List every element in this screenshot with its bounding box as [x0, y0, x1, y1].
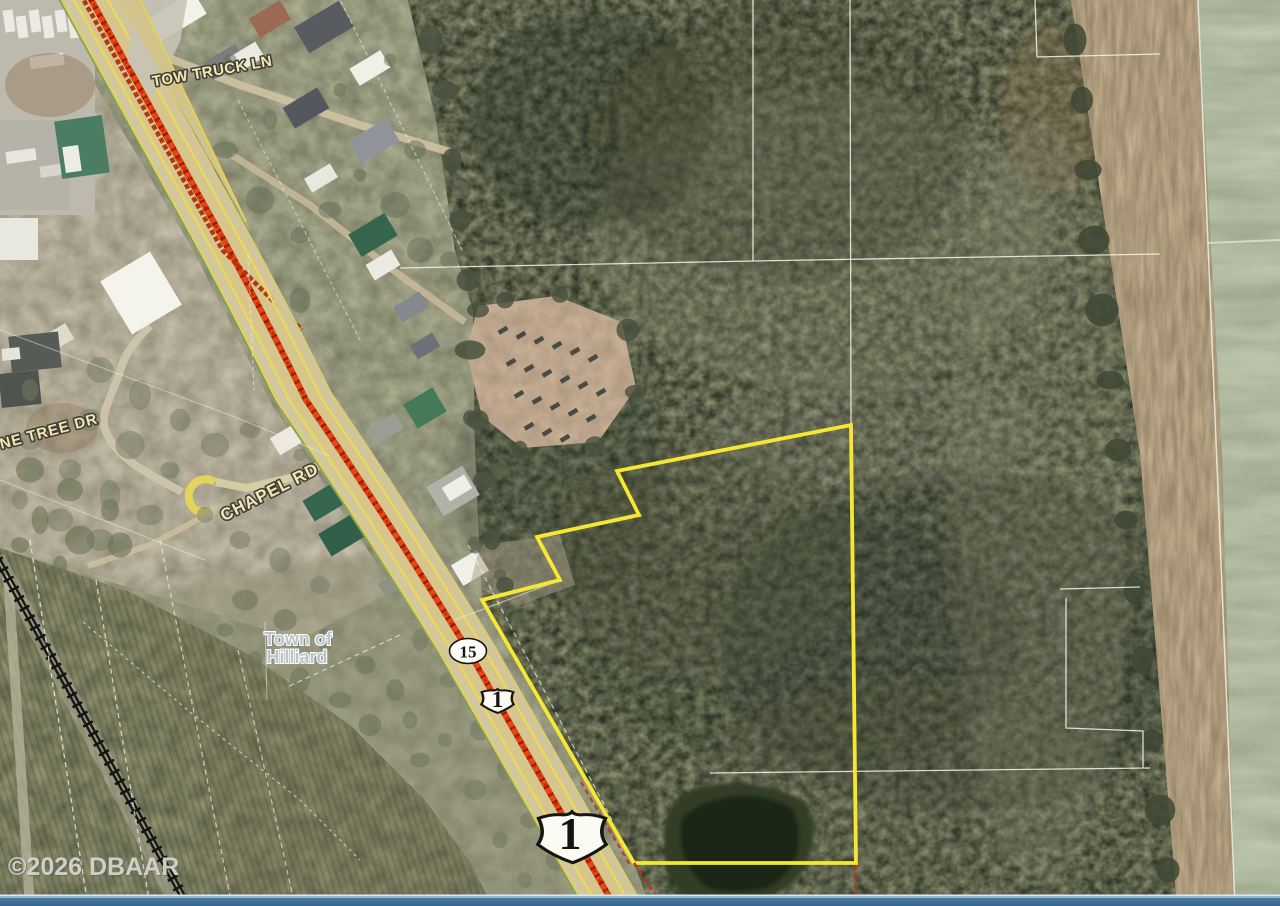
svg-text:Hilliard: Hilliard — [266, 647, 327, 667]
svg-text:Town of: Town of — [264, 629, 333, 649]
svg-text:1: 1 — [492, 687, 504, 712]
svg-text:1: 1 — [559, 808, 582, 859]
svg-text:©2026 DBAAR: ©2026 DBAAR — [8, 853, 179, 881]
svg-text:15: 15 — [460, 643, 477, 662]
